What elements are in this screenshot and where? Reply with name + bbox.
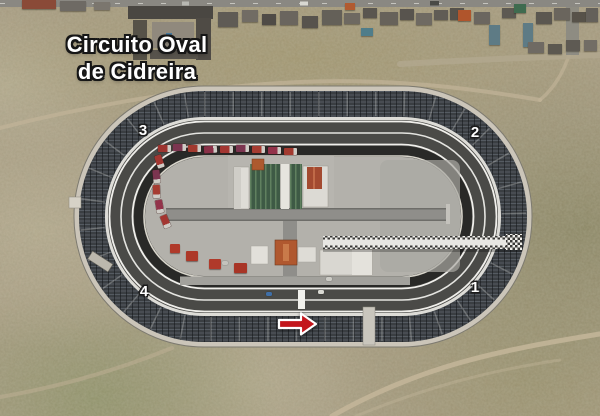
turn-4-label: 4 [134,283,154,301]
circuit-title: Circuito Oval de Cidreira [24,31,250,85]
circuit-title-line1: Circuito Oval [24,31,250,58]
turn-1-label: 1 [465,279,485,297]
turn-2-label: 2 [465,124,485,142]
race-direction-arrow-icon [277,311,319,337]
start-finish-line [298,290,305,309]
aerial-circuit-map: Circuito Oval de Cidreira 1 2 3 4 [0,0,600,416]
checkered-bridge [323,234,522,252]
circuit-title-line2: de Cidreira [24,58,250,85]
turn-3-label: 3 [133,122,153,140]
